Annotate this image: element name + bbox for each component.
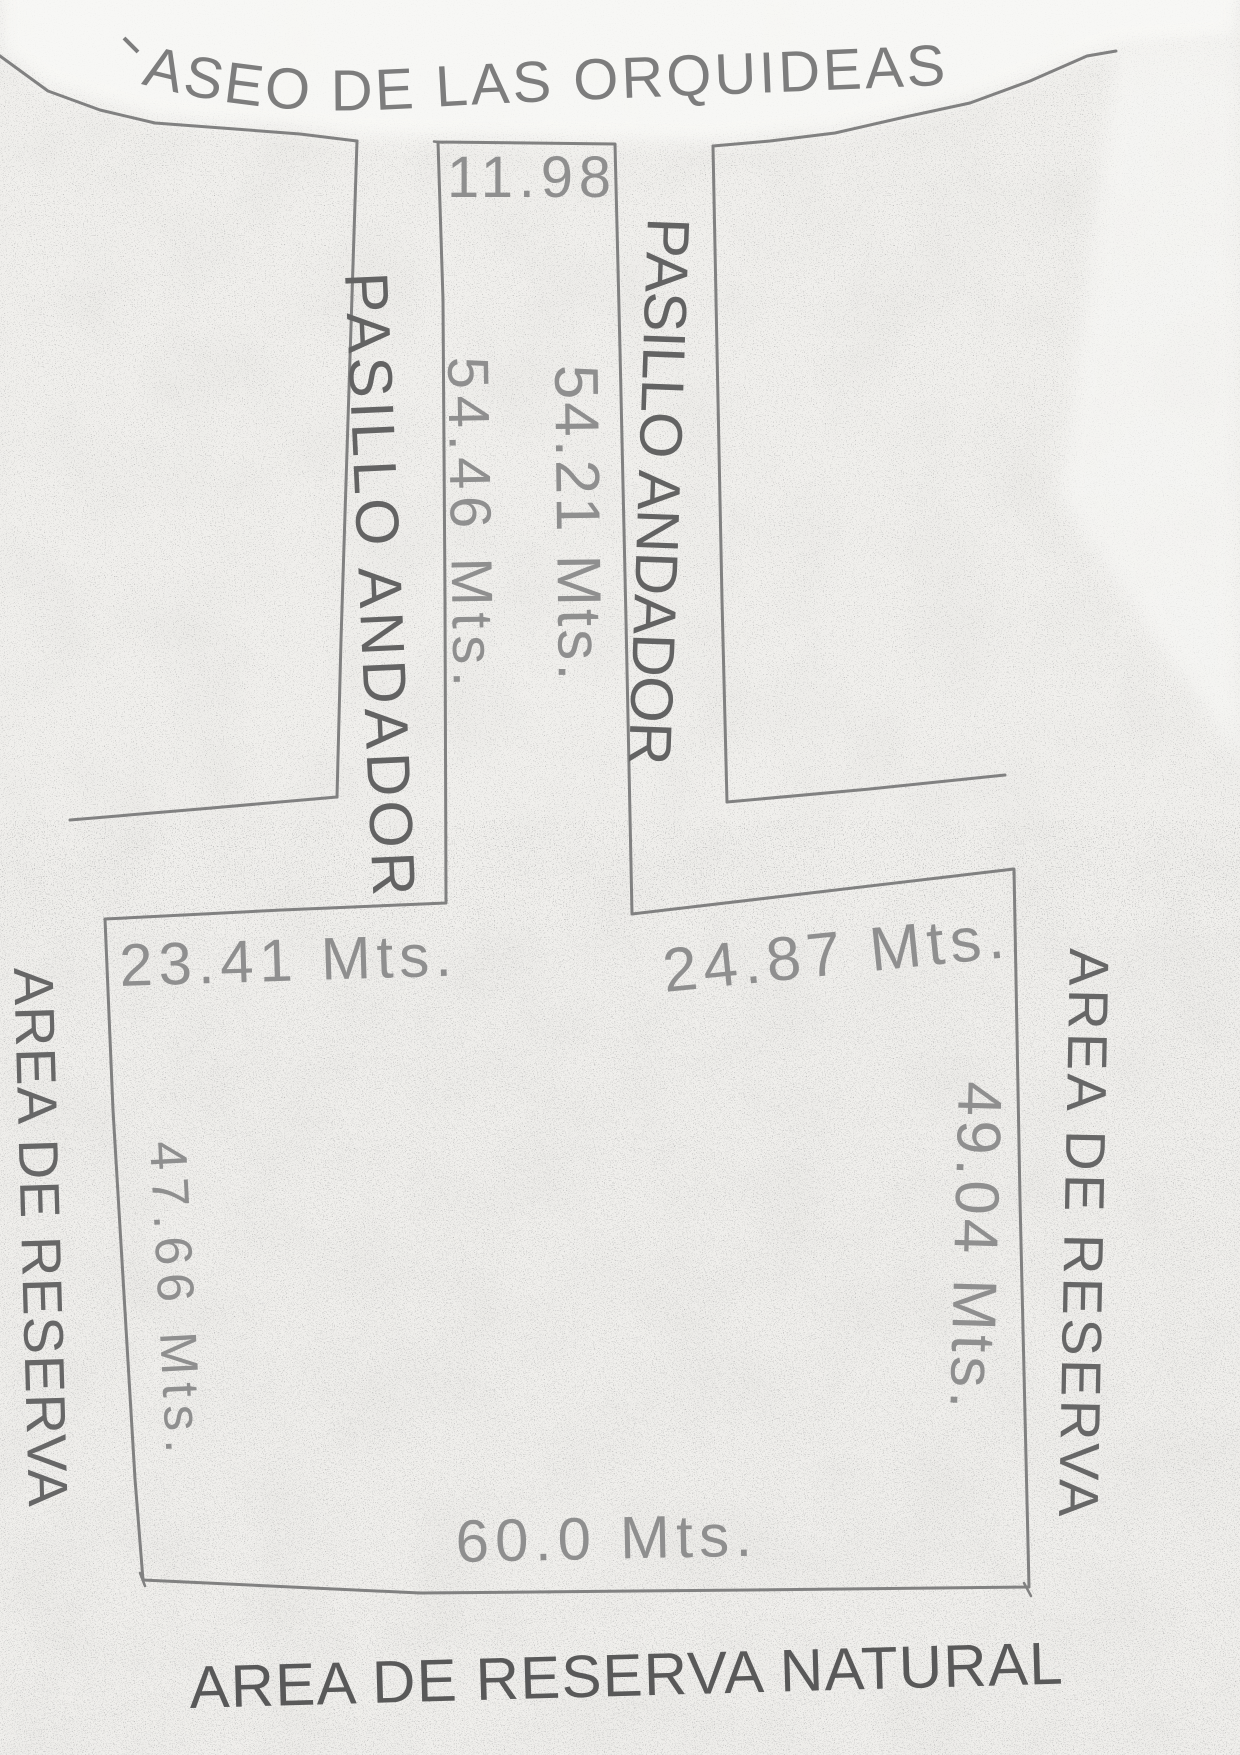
svg-text:54.21 Mts.: 54.21 Mts. [541,364,614,683]
svg-text:49.04 Mts.: 49.04 Mts. [936,1081,1014,1414]
svg-text:11.98: 11.98 [447,145,617,210]
svg-text:54.46 Mts.: 54.46 Mts. [435,356,506,694]
svg-text:23.41 Mts.: 23.41 Mts. [118,921,458,999]
svg-text:60.0 Mts.: 60.0 Mts. [455,1502,759,1575]
svg-text:AREA DE RESERVA: AREA DE RESERVA [1047,948,1121,1521]
